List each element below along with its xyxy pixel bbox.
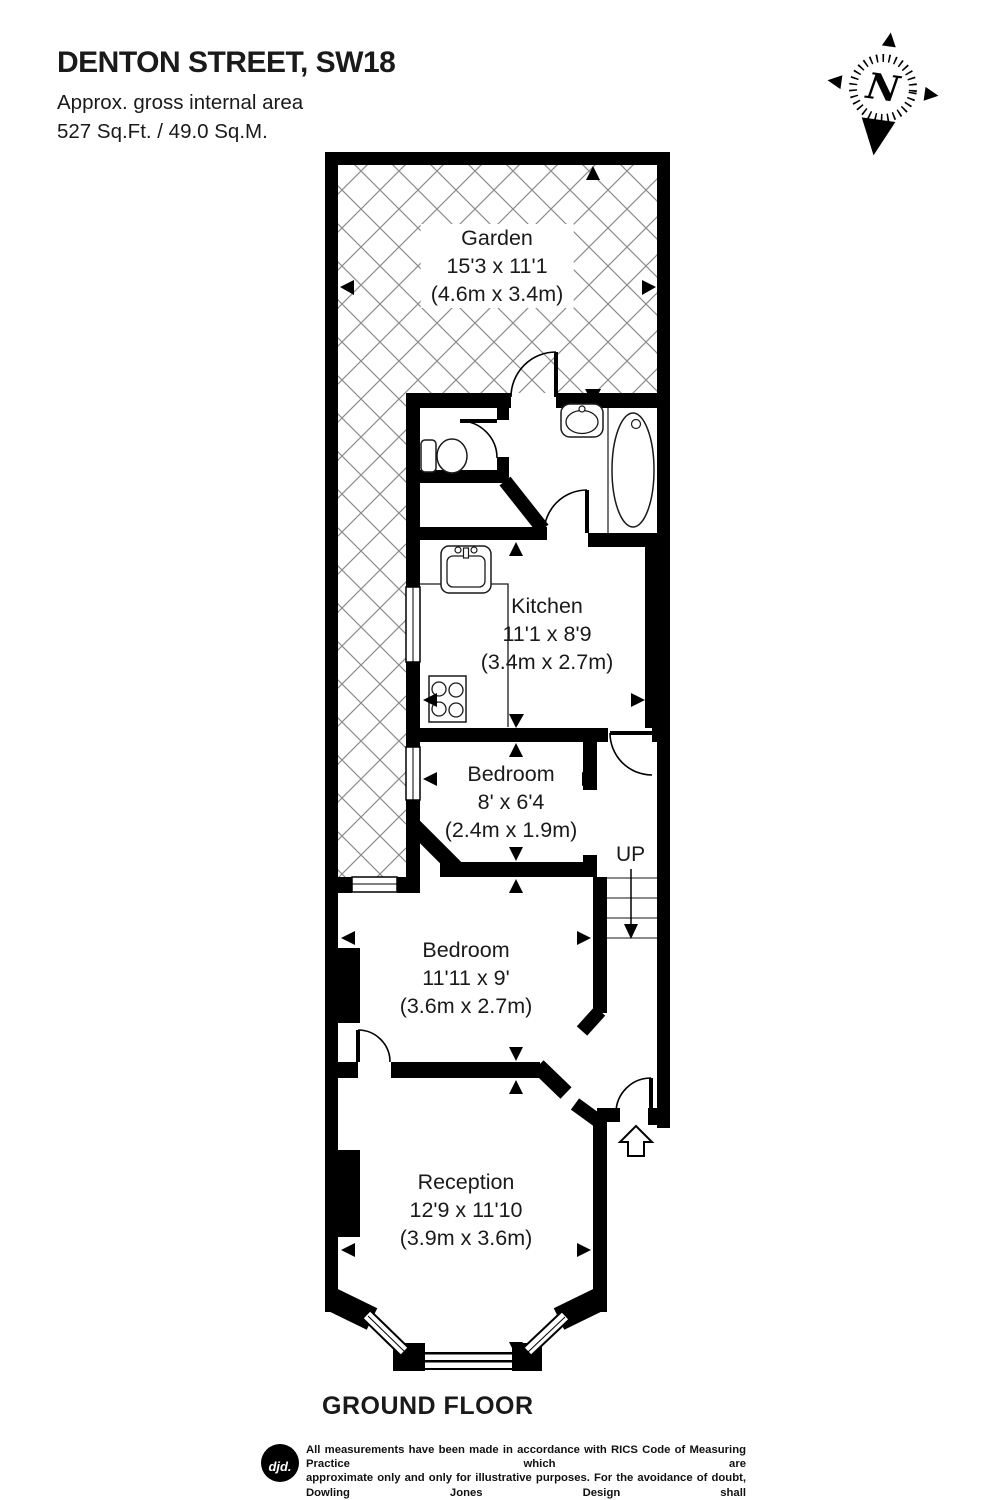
- room-label-bedroom-large: Bedroom 11'11 x 9' (3.6m x 2.7m): [400, 936, 533, 1020]
- footer-line-2: approximate only and only for illustrati…: [306, 1471, 746, 1499]
- fixtures: [420, 404, 654, 727]
- toilet-fixture: [421, 439, 467, 473]
- room-label-kitchen: Kitchen 11'1 x 8'9 (3.4m x 2.7m): [481, 592, 614, 676]
- chimney-breast-bedroom: [338, 948, 360, 1023]
- room-label-garden: Garden 15'3 x 11'1 (4.6m x 3.4m): [421, 224, 574, 308]
- footer-disclaimer: All measurements have been made in accor…: [306, 1443, 746, 1500]
- room-label-reception: Reception 12'9 x 11'10 (3.9m x 3.6m): [400, 1168, 533, 1252]
- stairs: [607, 869, 657, 939]
- kitchen-sink-fixture: [441, 546, 491, 593]
- compass-north-letter: N: [863, 65, 904, 112]
- floorplan-page: DENTON STREET, SW18 Approx. gross intern…: [0, 0, 1000, 1500]
- entrance-arrow-icon: [620, 1126, 652, 1156]
- chimney-breast-reception: [338, 1150, 360, 1237]
- djd-logo: djd.: [261, 1444, 299, 1482]
- floor-label: GROUND FLOOR: [322, 1392, 534, 1421]
- bathtub-fixture: [608, 408, 654, 533]
- footer-line-1: All measurements have been made in accor…: [306, 1443, 746, 1471]
- room-label-bedroom-small: Bedroom 8' x 6'4 (2.4m x 1.9m): [445, 760, 578, 844]
- basin-fixture: [561, 404, 603, 437]
- compass-icon: N: [818, 25, 946, 163]
- stairs-up-label: UP: [616, 843, 645, 867]
- stairs-direction-arrow-icon: [624, 924, 638, 939]
